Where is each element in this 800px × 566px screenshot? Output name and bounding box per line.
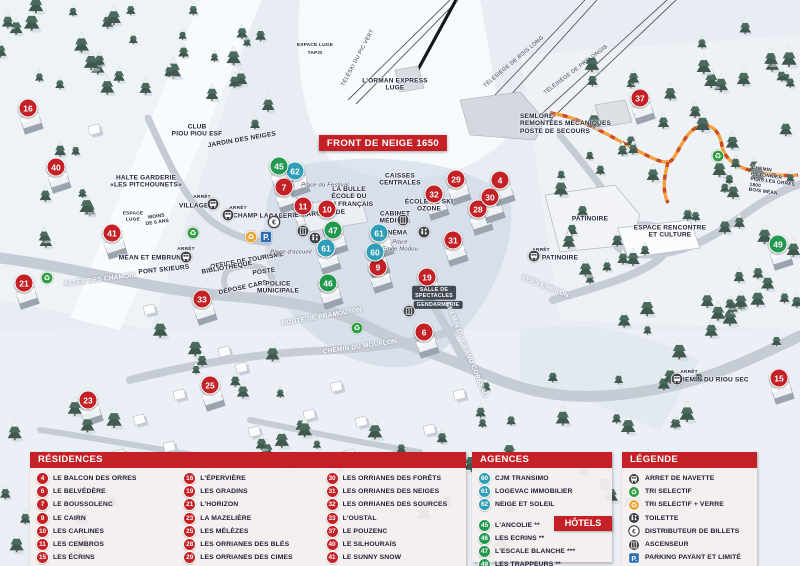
residence-item: 9LE CAIRN xyxy=(36,512,183,525)
item-label: LES ORRIANES DES BLÉS xyxy=(200,541,289,548)
residence-item: 25LES MÉLÈZES xyxy=(183,525,325,538)
residence-item: 40LE SILHOURAÏS xyxy=(326,538,463,551)
item-label: LOGEVAC IMMOBILIER xyxy=(495,488,573,495)
residence-item: 28LES ORRIANES DES BLÉS xyxy=(183,538,325,551)
map-marker-45: 45 xyxy=(270,157,289,176)
map-marker-40: 40 xyxy=(47,158,66,177)
residence-item: 4LE BALCON DES ORRES xyxy=(36,472,183,485)
hotels-header: HÔTELS xyxy=(554,516,612,531)
legend-label: PARKING PAYANT ET LIMITÉ xyxy=(645,554,741,561)
residences-column: 4LE BALCON DES ORRES6LE BELVÉDÈRE7LE BOU… xyxy=(36,472,183,564)
svg-text:♻: ♻ xyxy=(631,500,637,509)
map-marker-16: 16 xyxy=(19,99,38,118)
euro-icon: € xyxy=(628,525,640,537)
residence-item: 37LE POUZENC xyxy=(326,525,463,538)
svg-text:€: € xyxy=(632,529,636,536)
item-label: L'ÉPERVIÈRE xyxy=(200,475,246,482)
residence-item: 19LES GRADINS xyxy=(183,485,325,498)
item-label: LE BALCON DES ORRES xyxy=(53,475,136,482)
item-label: LES ORRIANES DES NEIGES xyxy=(343,488,440,495)
item-label: L'ESCALE BLANCHE *** xyxy=(495,548,575,555)
marker-badge: 10 xyxy=(36,525,49,538)
legende-header: LÉGENDE xyxy=(622,452,757,468)
item-label: LE SUNNY SNOW xyxy=(343,554,402,561)
map-marker-32: 32 xyxy=(425,185,444,204)
agences-panel: AGENCES IMMOBILIÈRES 60CJM TRANSIMO61LOG… xyxy=(472,452,612,562)
map-marker-41: 41 xyxy=(103,224,122,243)
legend-item: €DISTRIBUTEUR DE BILLETS xyxy=(628,525,754,538)
residence-item: 31LES ORRIANES DES NEIGES xyxy=(326,485,463,498)
hotel-item: 46LES ECRINS ** xyxy=(478,532,609,545)
hotel-item: 49LES TRAPPEURS ** xyxy=(478,558,609,566)
item-label: LES ORRIANES DES CIMES xyxy=(200,554,292,561)
recycle-icon: ♻ xyxy=(628,486,640,498)
legend-label: TRI SELECTIF xyxy=(645,488,692,495)
item-label: LES GRADINS xyxy=(200,488,248,495)
ascenseur-icon xyxy=(628,539,640,551)
marker-badge: 6 xyxy=(36,485,49,498)
svg-text:♻: ♻ xyxy=(631,487,637,496)
item-label: LES CEMBROS xyxy=(53,541,104,548)
map-marker-7: 7 xyxy=(275,178,294,197)
agences-list: 60CJM TRANSIMO61LOGEVAC IMMOBILIER62NEIG… xyxy=(472,468,612,562)
item-label: LES ORRIANES DES SOURCES xyxy=(343,501,448,508)
legend-label: TOILETTE xyxy=(645,515,679,522)
map-marker-30: 30 xyxy=(481,188,500,207)
marker-badge: 60 xyxy=(478,472,491,485)
residence-item: 23LA MAZELIÈRE xyxy=(183,512,325,525)
residence-item: 30LES ORRIANES DES FORÊTS xyxy=(326,472,463,485)
residence-item: 29LES ORRIANES DES CIMES xyxy=(183,551,325,564)
map-marker-60: 60 xyxy=(366,243,385,262)
front-de-neige-banner: FRONT DE NEIGE 1650 xyxy=(319,135,447,151)
svg-text:P.: P. xyxy=(631,553,637,562)
legende-list: ARRET DE NAVETTE♻TRI SELECTIF♻TRI SELECT… xyxy=(622,468,757,566)
map-marker-23: 23 xyxy=(79,391,98,410)
item-label: L'ANCOLIE ** xyxy=(495,522,540,529)
map-marker-37: 37 xyxy=(631,89,650,108)
residence-item: 11LES CEMBROS xyxy=(36,538,183,551)
map-marker-19: 19 xyxy=(418,268,437,287)
residences-panel: RÉSIDENCES 4LE BALCON DES ORRES6LE BELVÉ… xyxy=(30,452,466,566)
item-label: LES ORRIANES DES FORÊTS xyxy=(343,475,442,482)
map-marker-49: 49 xyxy=(769,235,788,254)
residence-item: 16L'ÉPERVIÈRE xyxy=(183,472,325,485)
bus-icon xyxy=(628,473,640,485)
item-label: LE BOUSSOLENC xyxy=(53,501,113,508)
legend-label: ARRET DE NAVETTE xyxy=(645,475,714,482)
marker-badge: 49 xyxy=(478,558,491,566)
residences-column: 16L'ÉPERVIÈRE19LES GRADINS21L'HORIZON23L… xyxy=(183,472,325,564)
legend-item: ♻TRI SELECTIF + VERRE xyxy=(628,498,754,511)
marker-badge: 29 xyxy=(183,551,196,564)
legend-label: ASCENSEUR xyxy=(645,541,689,548)
map-marker-61: 61 xyxy=(317,239,336,258)
item-label: LE POUZENC xyxy=(343,528,388,535)
agency-item: 60CJM TRANSIMO xyxy=(478,472,609,485)
item-label: LES TRAPPEURS ** xyxy=(495,561,561,566)
map-marker-31: 31 xyxy=(444,231,463,250)
item-label: NEIGE ET SOLEIL xyxy=(495,501,555,508)
item-label: LES ECRINS ** xyxy=(495,535,544,542)
item-label: L'OUSTAL xyxy=(343,515,377,522)
resort-map-screen: FRONT DE NEIGE 1650 TÉLÉSKI DU PIC VERTT… xyxy=(0,0,800,566)
legend-label: TRI SELECTIF + VERRE xyxy=(645,501,724,508)
marker-badge: 61 xyxy=(478,485,491,498)
marker-badge: 45 xyxy=(478,519,491,532)
legend-item: ARRET DE NAVETTE xyxy=(628,472,754,485)
residence-item: 32LES ORRIANES DES SOURCES xyxy=(326,498,463,511)
marker-badge: 7 xyxy=(36,498,49,511)
marker-badge: 62 xyxy=(478,498,491,511)
marker-badge: 32 xyxy=(326,498,339,511)
map-marker-11: 11 xyxy=(294,197,313,216)
marker-badge: 4 xyxy=(36,472,49,485)
residence-item: 21L'HORIZON xyxy=(183,498,325,511)
map-marker-10: 10 xyxy=(318,200,337,219)
item-label: LE BELVÉDÈRE xyxy=(53,488,106,495)
residence-item: 33L'OUSTAL xyxy=(326,512,463,525)
marker-badge: 28 xyxy=(183,538,196,551)
marker-badge: 40 xyxy=(326,538,339,551)
marker-badge: 23 xyxy=(183,512,196,525)
map-marker-6: 6 xyxy=(415,323,434,342)
marker-badge: 31 xyxy=(326,485,339,498)
residence-item: 7LE BOUSSOLENC xyxy=(36,498,183,511)
map-marker-15: 15 xyxy=(770,369,789,388)
item-label: LA MAZELIÈRE xyxy=(200,515,251,522)
map-marker-33: 33 xyxy=(193,290,212,309)
map-marker-21: 21 xyxy=(15,274,34,293)
marker-badge: 11 xyxy=(36,538,49,551)
marker-badge: 16 xyxy=(183,472,196,485)
marker-badge: 33 xyxy=(326,512,339,525)
recycle-verre-icon: ♻ xyxy=(628,499,640,511)
agences-header: AGENCES IMMOBILIÈRES xyxy=(472,452,612,468)
hotel-item: 47L'ESCALE BLANCHE *** xyxy=(478,545,609,558)
item-label: LES ÉCRINS xyxy=(53,554,95,561)
toilette-icon xyxy=(628,512,640,524)
marker-badge: 19 xyxy=(183,485,196,498)
marker-badge: 30 xyxy=(326,472,339,485)
residences-list: 4LE BALCON DES ORRES6LE BELVÉDÈRE7LE BOU… xyxy=(30,468,466,566)
legend-label: DISTRIBUTEUR DE BILLETS xyxy=(645,528,739,535)
agency-item: 61LOGEVAC IMMOBILIER xyxy=(478,485,609,498)
residences-header: RÉSIDENCES xyxy=(30,452,466,468)
item-label: L'HORIZON xyxy=(200,501,238,508)
map-marker-47: 47 xyxy=(324,221,343,240)
marker-badge: 37 xyxy=(326,525,339,538)
marker-badge: 21 xyxy=(183,498,196,511)
item-label: LES MÉLÈZES xyxy=(200,528,248,535)
parking-icon: P. xyxy=(628,552,640,564)
marker-badge: 25 xyxy=(183,525,196,538)
residence-item: 10LES CARLINES xyxy=(36,525,183,538)
residence-item: 15LES ÉCRINS xyxy=(36,551,183,564)
map-marker-29: 29 xyxy=(447,170,466,189)
item-label: LE CAIRN xyxy=(53,515,86,522)
legend-item: ASCENSEUR xyxy=(628,538,754,551)
residence-item: 41LE SUNNY SNOW xyxy=(326,551,463,564)
item-label: LE SILHOURAÏS xyxy=(343,541,397,548)
map-marker-61: 61 xyxy=(370,224,389,243)
legend-item: P.PARKING PAYANT ET LIMITÉ xyxy=(628,551,754,564)
marker-badge: 9 xyxy=(36,512,49,525)
marker-badge: 41 xyxy=(326,551,339,564)
legende-panel: LÉGENDE ARRET DE NAVETTE♻TRI SELECTIF♻TR… xyxy=(622,452,757,566)
item-label: CJM TRANSIMO xyxy=(495,475,549,482)
map-marker-4: 4 xyxy=(491,171,510,190)
residences-column: 30LES ORRIANES DES FORÊTS31LES ORRIANES … xyxy=(326,472,463,564)
legend-item: TOILETTE xyxy=(628,512,754,525)
map-marker-25: 25 xyxy=(201,376,220,395)
marker-badge: 47 xyxy=(478,545,491,558)
residence-item: 6LE BELVÉDÈRE xyxy=(36,485,183,498)
agency-item: 62NEIGE ET SOLEIL xyxy=(478,498,609,511)
marker-badge: 15 xyxy=(36,551,49,564)
item-label: LES CARLINES xyxy=(53,528,104,535)
map-marker-46: 46 xyxy=(319,274,338,293)
legend-item: ♻TRI SELECTIF xyxy=(628,485,754,498)
marker-badge: 46 xyxy=(478,532,491,545)
